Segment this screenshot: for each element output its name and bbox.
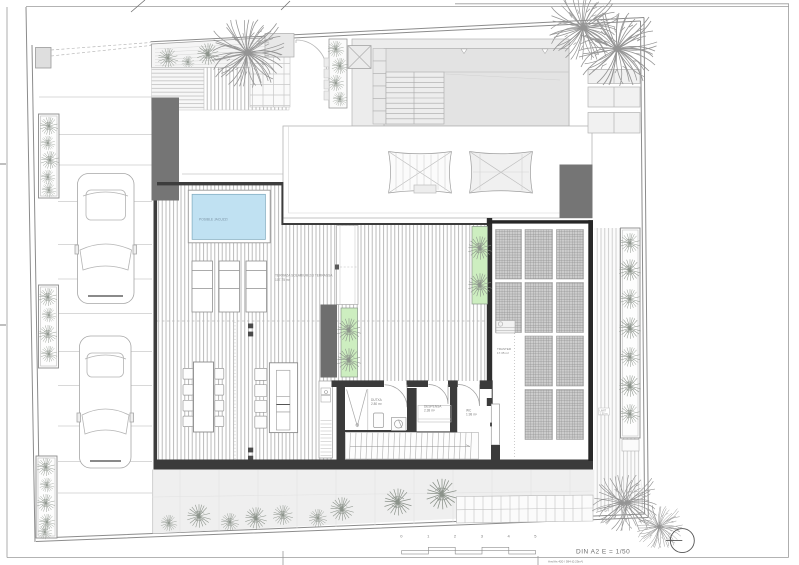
svg-text:2.38 m²: 2.38 m² [424, 409, 435, 413]
svg-text:17.35 m²: 17.35 m² [497, 351, 509, 355]
svg-text:2.30 m: 2.30 m [600, 411, 608, 415]
svg-text:107.75 m²: 107.75 m² [275, 278, 291, 282]
svg-text:TERRAZA SOLARIUM 2/3 TERRASSA: TERRAZA SOLARIUM 2/3 TERRASSA [275, 274, 333, 278]
svg-text:DIN A2 E = 1/50: DIN A2 E = 1/50 [576, 549, 630, 556]
svg-text:2.80 m²: 2.80 m² [371, 402, 382, 406]
svg-text:Anv/As 420 / 594 (0.25m²): Anv/As 420 / 594 (0.25m²) [548, 559, 583, 563]
svg-text:POSIBLE JACUZZI: POSIBLE JACUZZI [199, 218, 228, 222]
svg-text:1.98 m²: 1.98 m² [466, 413, 477, 417]
